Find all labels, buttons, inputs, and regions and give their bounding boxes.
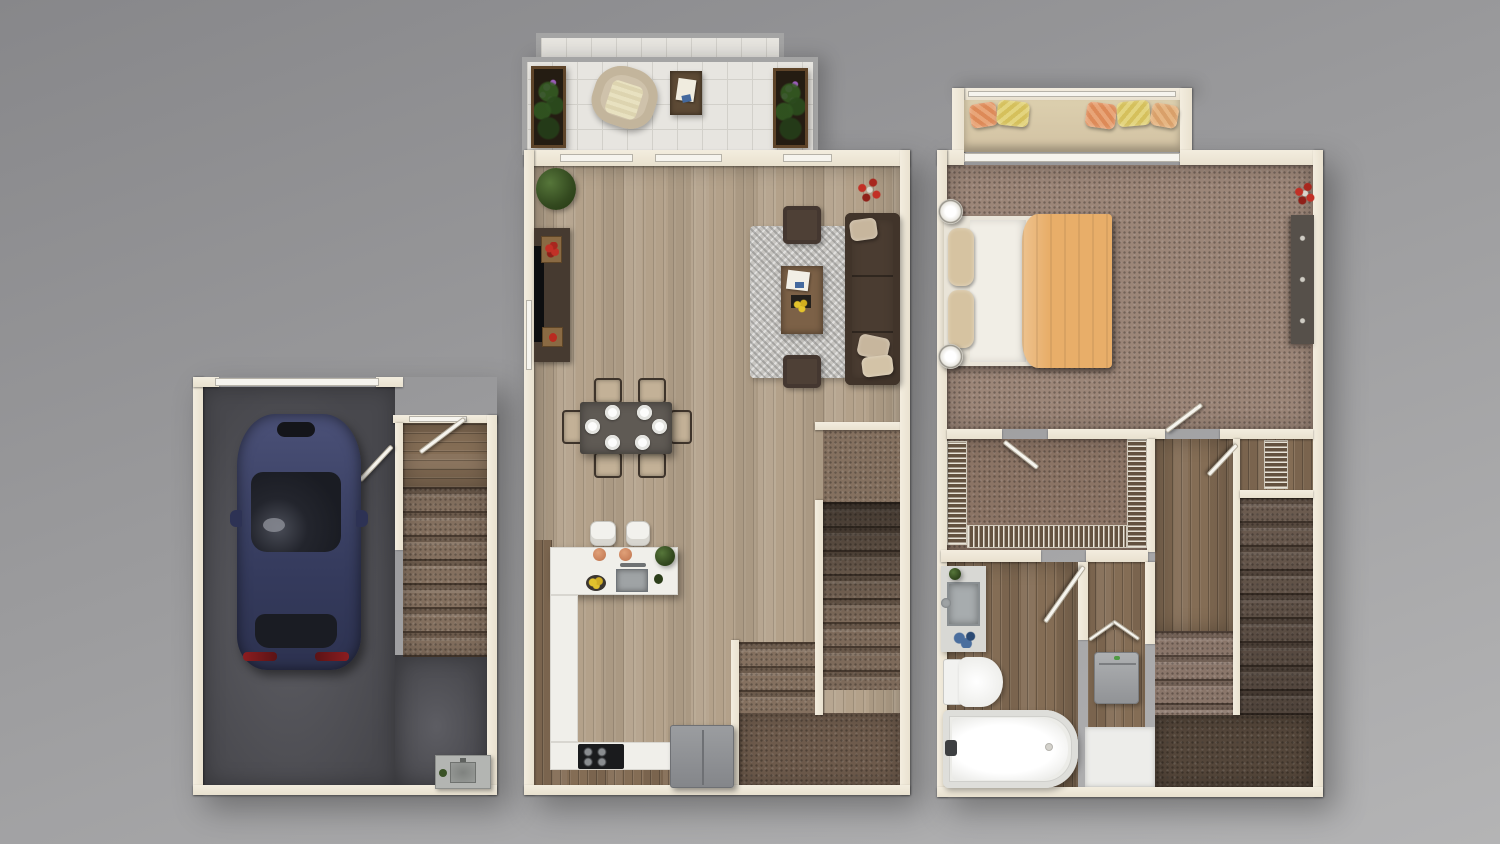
vanity-plant xyxy=(949,568,961,580)
washer-indicator xyxy=(1114,656,1120,660)
linen-closet-shelf xyxy=(1264,440,1288,489)
upper-stairs-return-flight xyxy=(1155,631,1233,715)
closet-shelf-right xyxy=(1127,439,1147,548)
bathtub-drain xyxy=(1045,743,1053,751)
toilet-bowl xyxy=(959,657,1003,707)
bath-corridor-floor xyxy=(1078,562,1155,630)
bed xyxy=(944,216,1110,366)
bay-sill xyxy=(964,153,1180,162)
bay-wall-right xyxy=(1180,88,1192,157)
toilet xyxy=(943,657,1003,707)
upper-unit xyxy=(0,0,1500,844)
floor-plan-scene xyxy=(0,0,1500,844)
closet-hall-wall xyxy=(1147,439,1155,552)
bedroom-wall-seg-2 xyxy=(1048,429,1165,439)
bed-blanket xyxy=(1022,214,1112,368)
upper-stairs-darken xyxy=(1240,497,1313,715)
vanity xyxy=(941,566,986,652)
bedroom-lamp-bottom xyxy=(938,344,963,369)
bed-pillow-1 xyxy=(948,228,974,286)
seat-pillow-4 xyxy=(1116,100,1151,128)
bed-sheet xyxy=(970,220,1026,362)
vanity-sink xyxy=(947,582,980,626)
seat-pillow-3 xyxy=(1084,101,1117,130)
bedroom-red-flowers xyxy=(1291,181,1318,208)
bedroom-wall-seg-1 xyxy=(947,429,1002,439)
hall-stair-wall xyxy=(1233,439,1240,715)
laundry-hall-stub xyxy=(1145,562,1155,644)
washer xyxy=(1094,652,1139,704)
seat-pillow-1 xyxy=(968,101,998,129)
linen-closet-bottom-wall xyxy=(1240,490,1313,498)
bathtub-faucet xyxy=(945,740,957,756)
vanity-blue-accessories xyxy=(951,630,979,648)
closet-shelf-left xyxy=(947,441,967,545)
bedroom-lamp-top xyxy=(938,199,963,224)
upper-stairs-dark-landing xyxy=(1155,715,1313,787)
upper-stairs-flight-down xyxy=(1240,497,1313,715)
white-panel xyxy=(1085,727,1155,787)
closet-bath-wall-seg-1 xyxy=(941,550,1041,562)
bedroom-wall-seg-3 xyxy=(1220,429,1313,439)
dresser xyxy=(1291,215,1314,344)
upper-wall-bottom xyxy=(937,787,1323,797)
bed-pillow-2 xyxy=(948,290,974,348)
seat-pillow-2 xyxy=(996,99,1030,127)
upper-wall-top-right xyxy=(1180,150,1323,165)
bay-window-strip xyxy=(968,91,1176,97)
vanity-faucet xyxy=(941,598,951,608)
closet-shelf-bottom xyxy=(967,525,1127,548)
hallway-floor xyxy=(1155,439,1233,631)
upper-wall-right xyxy=(1313,150,1323,797)
bay-wall-left xyxy=(952,88,964,157)
bathtub xyxy=(943,710,1078,788)
washer-lid-line xyxy=(1099,663,1136,665)
closet-bath-wall-seg-2 xyxy=(1086,550,1148,562)
seat-pillow-5 xyxy=(1149,102,1180,129)
